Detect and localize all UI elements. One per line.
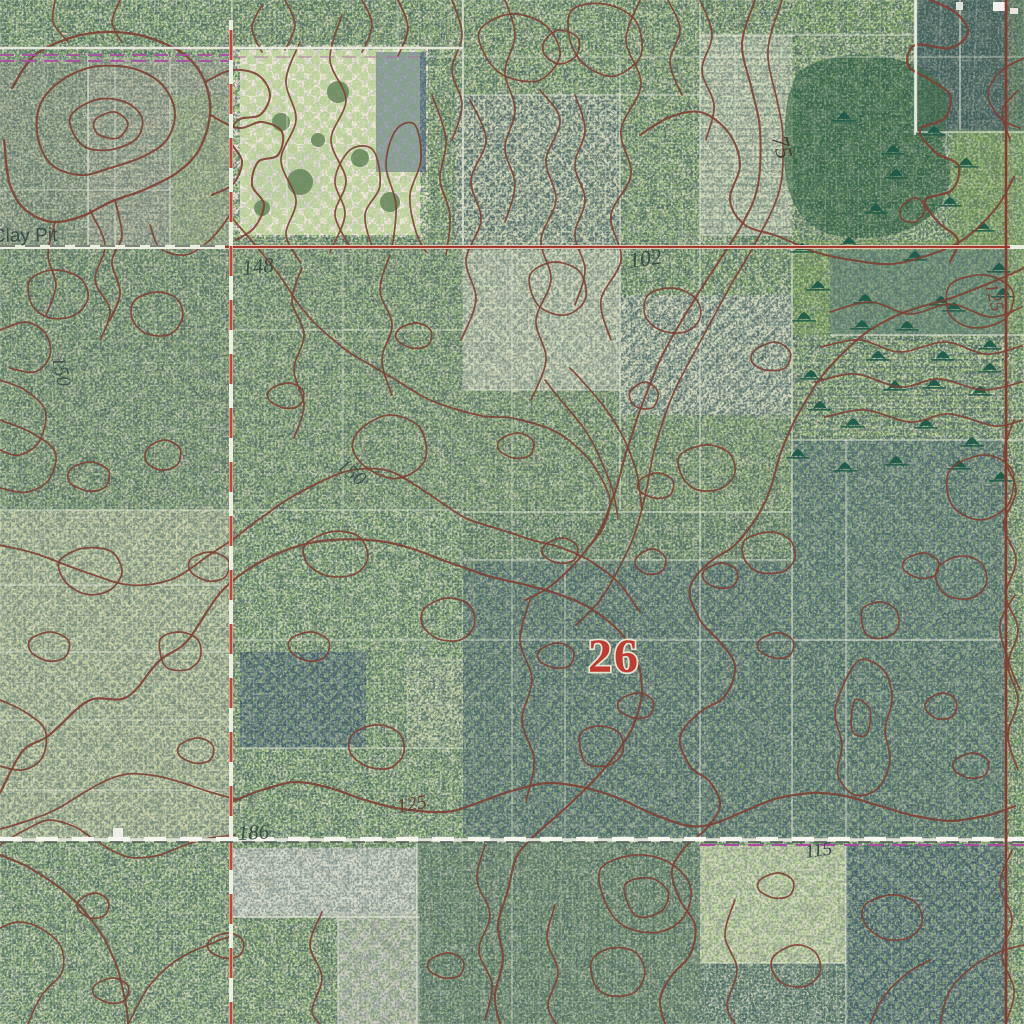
svg-text:186: 186: [237, 819, 270, 845]
svg-text:26: 26: [588, 630, 640, 683]
svg-text:102: 102: [627, 244, 663, 273]
svg-text:148: 148: [241, 253, 275, 280]
svg-text:115: 115: [804, 838, 834, 863]
svg-text:Clay Pit: Clay Pit: [0, 225, 58, 247]
